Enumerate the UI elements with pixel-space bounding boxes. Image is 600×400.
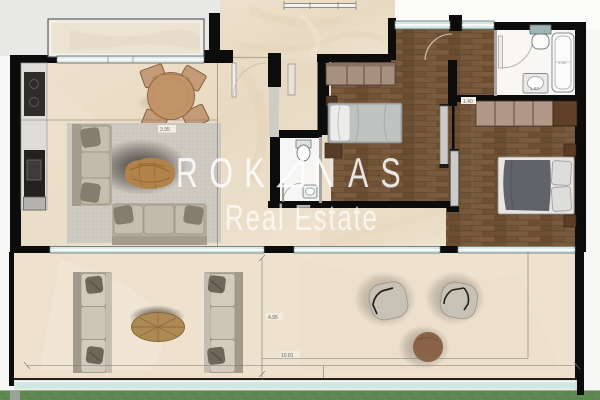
svg-text:4.95: 4.95 [268,315,278,321]
svg-text:Real Estate: Real Estate [225,198,379,238]
svg-text:1.05: 1.05 [558,60,567,65]
svg-text:1.62: 1.62 [530,86,539,91]
svg-text:3.95: 3.95 [160,127,170,133]
svg-text:10.81: 10.81 [281,353,294,359]
svg-text:NAS: NAS [314,149,413,196]
svg-text:1.40: 1.40 [463,99,473,105]
svg-text:ROK: ROK [176,149,276,196]
